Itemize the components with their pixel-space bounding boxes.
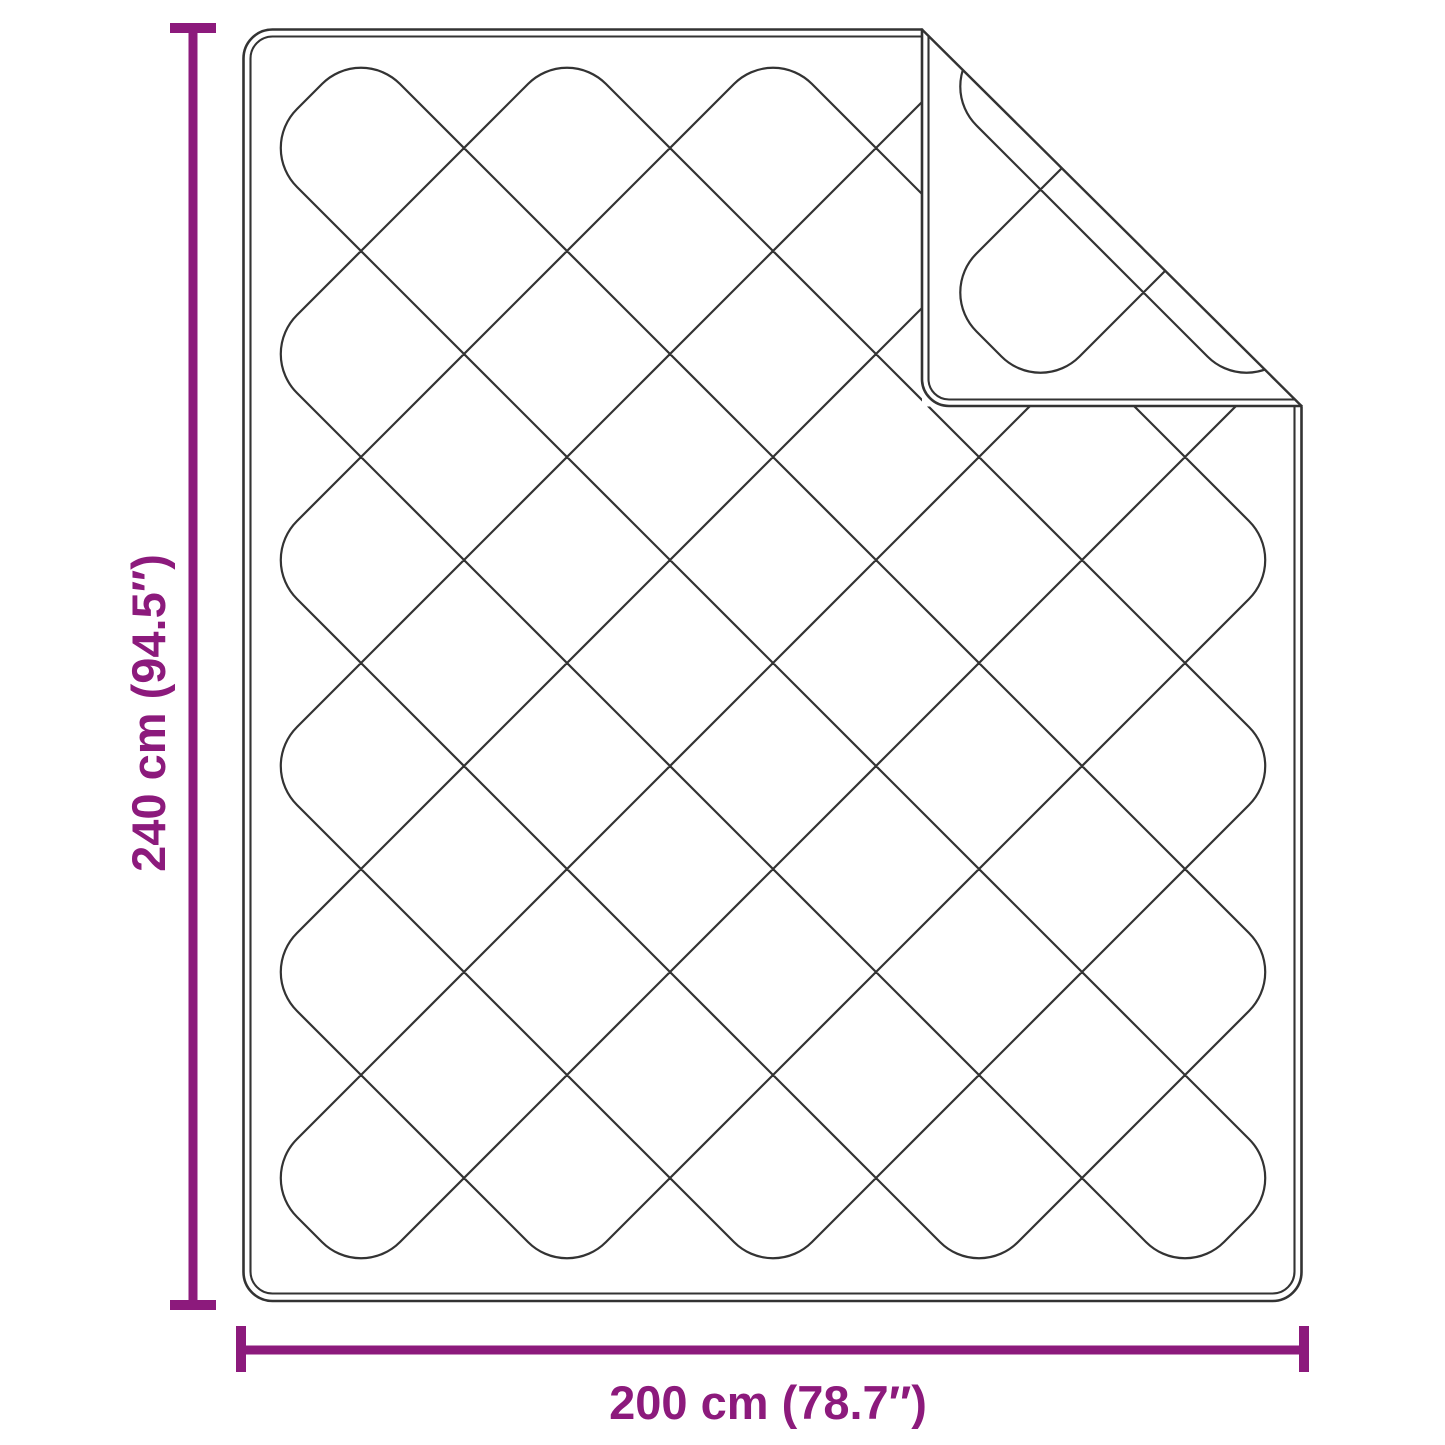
folded-corner-face: [900, 0, 1445, 412]
blanket-front-face: [251, 37, 1295, 1294]
blanket-body: [244, 30, 1302, 1302]
blanket-outer-edge: [244, 30, 1302, 1302]
dimension-diagram-canvas: 240 cm (94.5″) 200 cm (78.7″): [0, 0, 1445, 1445]
folded-corner: [900, 0, 1445, 412]
width-dimension-label: 200 cm (78.7″): [609, 1376, 927, 1429]
height-dimension-label: 240 cm (94.5″): [122, 554, 175, 872]
width-dimension: 200 cm (78.7″): [241, 1326, 1304, 1429]
blanket-dimension-diagram: 240 cm (94.5″) 200 cm (78.7″): [0, 0, 1445, 1445]
height-dimension: 240 cm (94.5″): [122, 28, 216, 1305]
